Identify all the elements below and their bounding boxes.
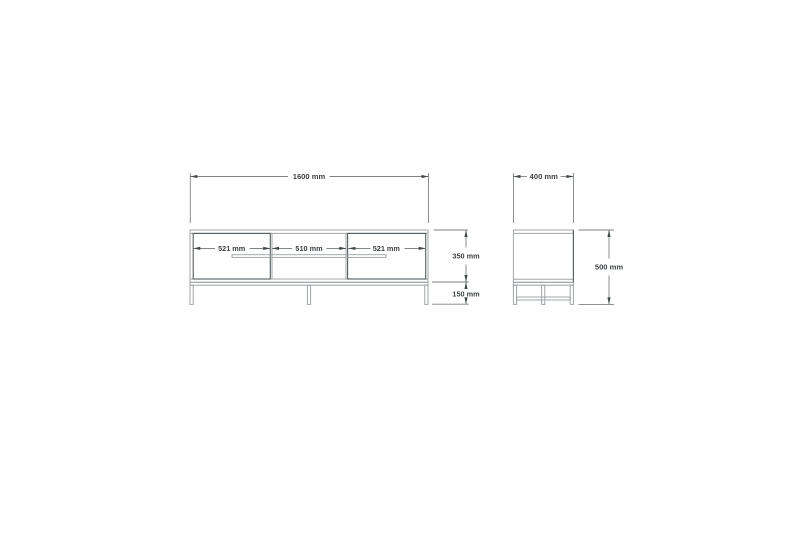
svg-text:510 mm: 510 mm bbox=[295, 244, 323, 253]
svg-text:521 mm: 521 mm bbox=[218, 244, 246, 253]
svg-text:500 mm: 500 mm bbox=[595, 263, 624, 272]
svg-text:521 mm: 521 mm bbox=[373, 244, 401, 253]
svg-text:1600 mm: 1600 mm bbox=[293, 172, 326, 181]
svg-text:400 mm: 400 mm bbox=[530, 172, 559, 181]
svg-text:350 mm: 350 mm bbox=[452, 252, 480, 261]
svg-text:150 mm: 150 mm bbox=[452, 289, 480, 298]
